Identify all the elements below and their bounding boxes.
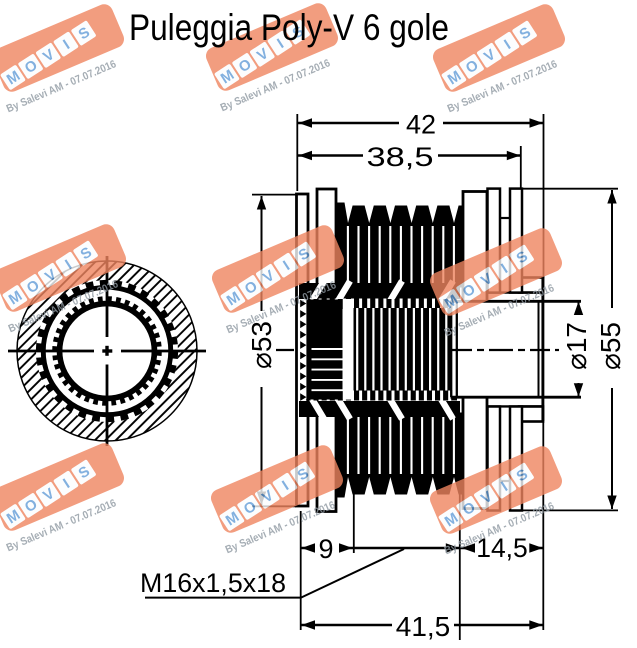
svg-text:⌀55: ⌀55	[595, 322, 626, 370]
svg-text:⌀17: ⌀17	[561, 322, 592, 370]
svg-text:M16x1,5x18: M16x1,5x18	[140, 568, 286, 598]
svg-text:41,5: 41,5	[396, 611, 451, 642]
svg-text:9: 9	[318, 534, 333, 564]
svg-text:38,5: 38,5	[367, 142, 434, 172]
svg-text:⌀53: ⌀53	[246, 321, 277, 369]
svg-text:Puleggia Poly-V 6 gole: Puleggia Poly-V 6 gole	[129, 7, 449, 48]
svg-text:42: 42	[406, 110, 436, 140]
